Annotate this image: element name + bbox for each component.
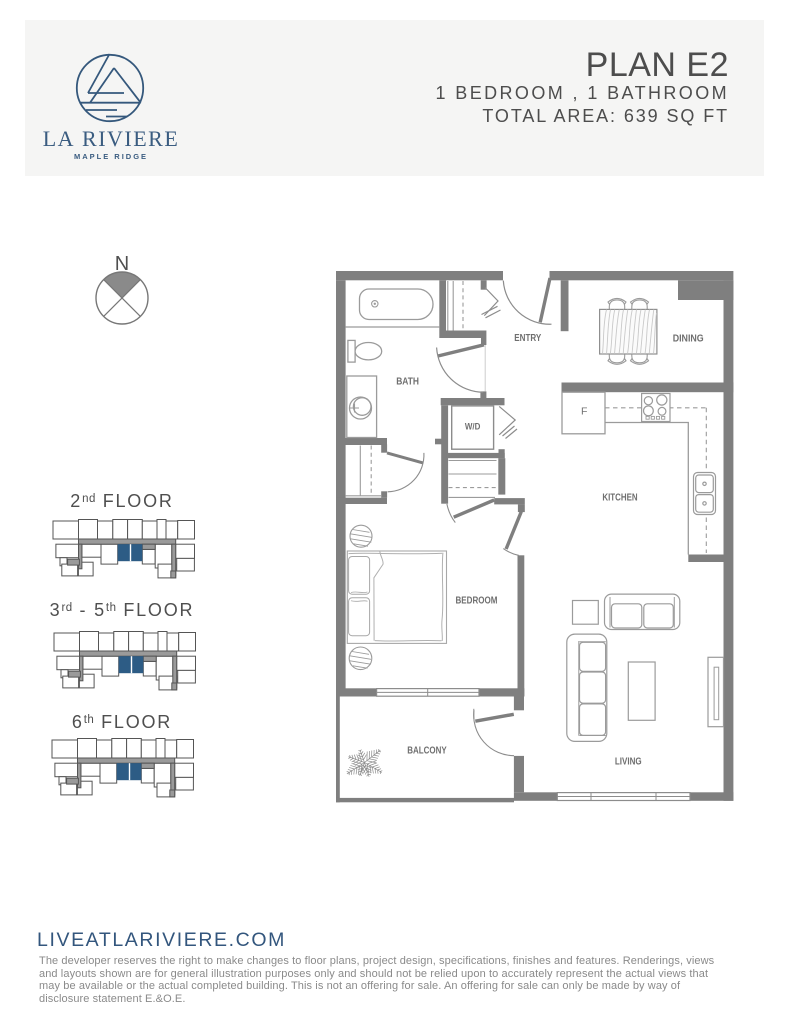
- svg-text:F: F: [581, 406, 587, 418]
- svg-text:BEDROOM: BEDROOM: [456, 596, 498, 607]
- svg-text:KITCHEN: KITCHEN: [602, 493, 637, 504]
- svg-text:W/D: W/D: [465, 422, 481, 432]
- svg-text:BALCONY: BALCONY: [407, 745, 447, 756]
- svg-text:LIVING: LIVING: [615, 757, 642, 768]
- svg-text:BATH: BATH: [396, 377, 419, 388]
- svg-text:ENTRY: ENTRY: [514, 333, 541, 344]
- svg-text:DINING: DINING: [673, 334, 704, 345]
